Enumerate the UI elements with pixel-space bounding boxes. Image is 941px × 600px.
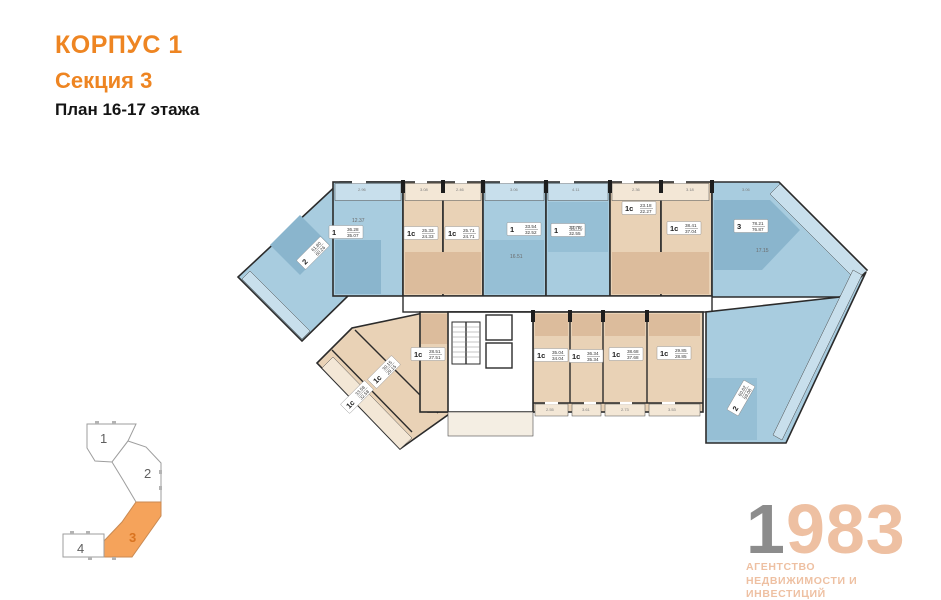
svg-text:35.07: 35.07 xyxy=(347,233,359,238)
svg-text:25.71: 25.71 xyxy=(463,228,475,233)
room-shade xyxy=(335,240,381,294)
svg-text:36.34: 36.34 xyxy=(587,351,599,356)
svg-text:33.54: 33.54 xyxy=(525,224,537,229)
apartment-label[interactable]: 1с29.8528.85 xyxy=(657,347,691,360)
svg-text:24.71: 24.71 xyxy=(463,234,475,239)
svg-text:1с: 1с xyxy=(612,350,620,359)
svg-text:3: 3 xyxy=(737,222,741,231)
dimension-label: 3.06 xyxy=(742,187,751,192)
svg-text:38.41: 38.41 xyxy=(685,223,697,228)
svg-text:1: 1 xyxy=(554,226,558,235)
svg-text:24.33: 24.33 xyxy=(422,234,434,239)
minimap-label-4: 4 xyxy=(77,541,84,556)
svg-text:1с: 1с xyxy=(537,351,545,360)
room-area-label: 17.15 xyxy=(756,248,769,254)
svg-text:35.04: 35.04 xyxy=(552,350,564,355)
apartment-label[interactable]: 136.2835.07 xyxy=(329,226,363,239)
room-shade xyxy=(405,252,481,294)
room-shade xyxy=(612,252,709,294)
room-area-label: 16.51 xyxy=(510,254,523,260)
dimension-label: 4.11 xyxy=(572,187,580,192)
svg-text:25.33: 25.33 xyxy=(422,228,434,233)
apartment-label[interactable]: 1с25.3324.33 xyxy=(404,227,438,240)
apartment-label[interactable]: 1с38.6837.68 xyxy=(609,348,643,361)
elevator xyxy=(486,315,512,340)
logo-digits-accent: 983 xyxy=(786,490,906,568)
minimap: 1 2 3 4 xyxy=(63,421,162,560)
dimension-label: 3.06 xyxy=(510,187,519,192)
logo-year: 1983 xyxy=(746,497,928,561)
apartment-label[interactable]: 1с36.3435.34 xyxy=(569,350,603,363)
core-loggia xyxy=(448,412,533,436)
stair-core xyxy=(448,312,533,436)
svg-text:1с: 1с xyxy=(572,352,580,361)
svg-text:1с: 1с xyxy=(407,229,415,238)
svg-text:32.52: 32.52 xyxy=(525,230,537,235)
svg-text:36.28: 36.28 xyxy=(347,227,359,232)
svg-text:1с: 1с xyxy=(625,204,633,213)
svg-text:1с: 1с xyxy=(414,350,422,359)
svg-text:1: 1 xyxy=(332,228,336,237)
room-shade xyxy=(485,240,544,294)
svg-text:78.21: 78.21 xyxy=(752,221,764,226)
dimension-label: 2.46 xyxy=(456,187,465,192)
svg-text:1: 1 xyxy=(510,225,514,234)
room-area-label: 10.76 xyxy=(570,226,583,232)
dimension-label: 2.96 xyxy=(358,187,367,192)
apartment-label[interactable]: 1с25.7124.71 xyxy=(445,227,479,240)
svg-text:38.68: 38.68 xyxy=(627,349,639,354)
svg-text:37.68: 37.68 xyxy=(627,355,639,360)
logo-1983: 1983 АГЕНТСТВО НЕДВИЖИМОСТИ И ИНВЕСТИЦИЙ xyxy=(746,497,928,600)
page: КОРПУС 1 Секция 3 План 16-17 этажа xyxy=(0,0,941,600)
minimap-label-2: 2 xyxy=(144,466,151,481)
svg-text:37.04: 37.04 xyxy=(685,229,697,234)
dimension-label: 2.55 xyxy=(546,407,555,412)
apartment-label[interactable]: 1с35.0434.04 xyxy=(534,349,568,362)
apartment-label[interactable]: 1с28.5127.51 xyxy=(411,348,445,361)
svg-text:34.04: 34.04 xyxy=(552,356,564,361)
svg-text:35.34: 35.34 xyxy=(587,357,599,362)
dimension-label: 3.53 xyxy=(668,407,677,412)
svg-text:28.51: 28.51 xyxy=(429,349,441,354)
minimap-label-1: 1 xyxy=(100,431,107,446)
svg-text:1с: 1с xyxy=(660,349,668,358)
svg-text:29.85: 29.85 xyxy=(675,348,687,353)
balcony xyxy=(335,184,401,201)
dimension-label: 2.36 xyxy=(632,187,641,192)
corridor xyxy=(403,296,712,312)
apartment-label[interactable]: 378.2176.87 xyxy=(734,220,768,233)
svg-text:23.18: 23.18 xyxy=(640,203,652,208)
svg-text:76.87: 76.87 xyxy=(752,227,764,232)
elevator xyxy=(486,343,512,368)
logo-digit-gray: 1 xyxy=(746,490,786,568)
logo-subtitle-2: НЕДВИЖИМОСТИ И ИНВЕСТИЦИЙ xyxy=(746,575,928,600)
apartment-label[interactable]: 1с23.1822.27 xyxy=(622,202,656,215)
dimension-label: 3.08 xyxy=(420,187,429,192)
dimension-label: 2.73 xyxy=(621,407,630,412)
svg-text:28.85: 28.85 xyxy=(675,354,687,359)
minimap-label-3: 3 xyxy=(129,530,136,545)
svg-text:1с: 1с xyxy=(448,229,456,238)
apartment-label[interactable]: 1с38.4137.04 xyxy=(667,222,701,235)
svg-text:1с: 1с xyxy=(670,224,678,233)
apartment-label[interactable]: 133.5432.52 xyxy=(507,223,541,236)
svg-text:22.27: 22.27 xyxy=(640,209,652,214)
dimension-label: 3.61 xyxy=(582,407,591,412)
dimension-label: 3.18 xyxy=(686,187,695,192)
room-area-label: 12.37 xyxy=(352,218,365,224)
svg-text:27.51: 27.51 xyxy=(429,355,441,360)
